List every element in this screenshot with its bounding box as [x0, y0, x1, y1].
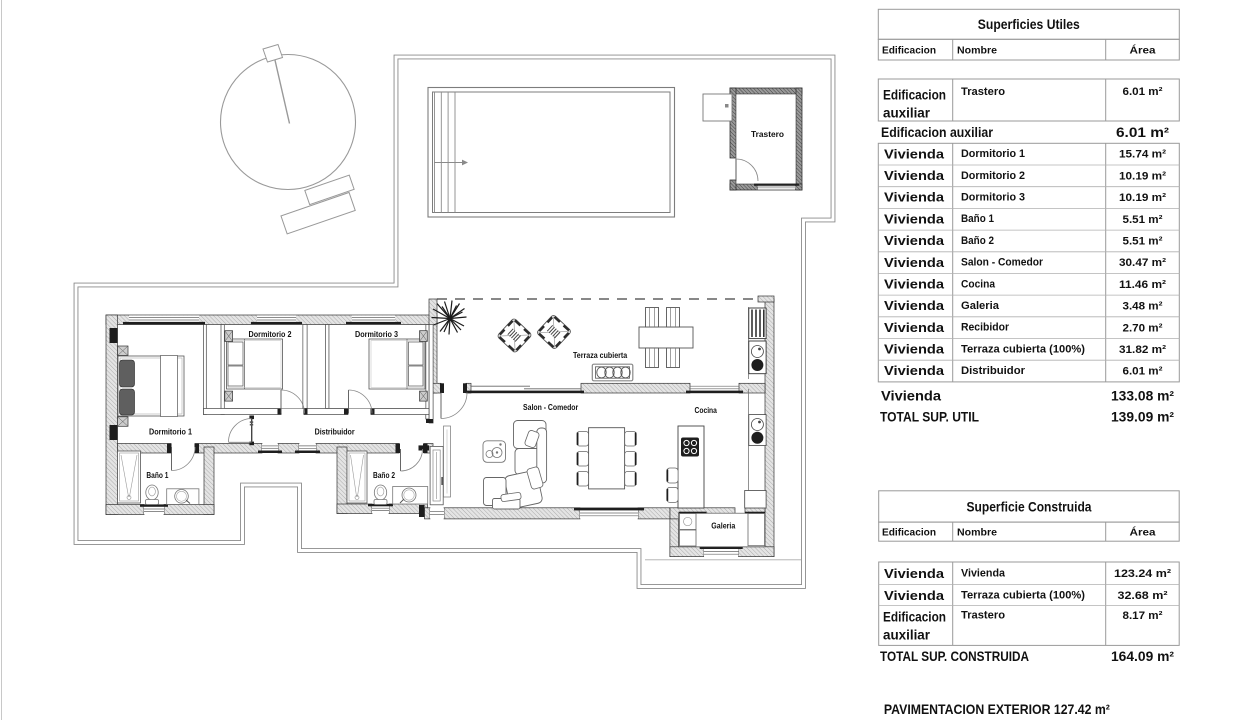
svg-text:Área: Área: [1130, 43, 1156, 56]
svg-text:Vivienda: Vivienda: [884, 211, 945, 226]
svg-text:133.08 m²: 133.08 m²: [1111, 389, 1175, 404]
svg-text:Dormitorio 1: Dormitorio 1: [149, 428, 192, 437]
svg-text:Vivienda: Vivienda: [884, 168, 945, 183]
svg-text:Vivienda: Vivienda: [884, 233, 945, 248]
svg-text:31.82 m²: 31.82 m²: [1119, 344, 1166, 356]
svg-text:Edificacion: Edificacion: [883, 88, 946, 103]
svg-text:Dormitorio 1: Dormitorio 1: [961, 148, 1025, 160]
svg-text:Vivienda: Vivienda: [884, 298, 945, 313]
svg-text:Vivienda: Vivienda: [961, 568, 1006, 580]
svg-text:Área: Área: [1130, 525, 1156, 538]
svg-text:Terraza cubierta (100%): Terraza cubierta (100%): [961, 590, 1085, 602]
svg-text:Baño 1: Baño 1: [146, 471, 168, 480]
svg-text:139.09 m²: 139.09 m²: [1111, 410, 1174, 425]
svg-text:Vivienda: Vivienda: [884, 320, 945, 335]
svg-text:2.70 m²: 2.70 m²: [1123, 322, 1163, 334]
svg-text:Vivienda: Vivienda: [884, 566, 945, 581]
svg-text:5.51 m²: 5.51 m²: [1123, 236, 1163, 248]
svg-text:Cocina: Cocina: [961, 278, 996, 290]
svg-text:Vivienda: Vivienda: [884, 255, 945, 270]
svg-text:10.19 m²: 10.19 m²: [1119, 170, 1166, 182]
svg-text:Recibidor: Recibidor: [961, 322, 1010, 334]
svg-text:Superficie Construida: Superficie Construida: [967, 498, 1092, 514]
svg-text:PAVIMENTACION EXTERIOR 127.42: PAVIMENTACION EXTERIOR 127.42 m²: [884, 701, 1110, 717]
svg-text:Trastero: Trastero: [961, 610, 1005, 622]
svg-text:Galeria: Galeria: [711, 522, 735, 531]
svg-text:Nombre: Nombre: [957, 526, 997, 538]
svg-text:Distribuidor: Distribuidor: [961, 365, 1026, 377]
svg-text:Trastero: Trastero: [961, 86, 1005, 98]
svg-text:Cocina: Cocina: [695, 406, 718, 415]
svg-text:11.46 m²: 11.46 m²: [1119, 279, 1166, 291]
svg-text:6.01 m²: 6.01 m²: [1116, 125, 1170, 140]
svg-text:Baño 2: Baño 2: [373, 471, 395, 480]
svg-text:Trastero: Trastero: [751, 130, 784, 139]
svg-text:Vivienda: Vivienda: [881, 389, 942, 404]
svg-text:auxiliar: auxiliar: [883, 628, 931, 643]
svg-text:Salon - Comedor: Salon - Comedor: [523, 403, 578, 412]
svg-text:Edificacion: Edificacion: [882, 44, 936, 56]
svg-text:3.48 m²: 3.48 m²: [1123, 301, 1163, 313]
svg-text:Dormitorio 2: Dormitorio 2: [249, 330, 292, 339]
svg-text:Dormitorio 2: Dormitorio 2: [961, 170, 1025, 182]
svg-text:6.01 m²: 6.01 m²: [1123, 86, 1163, 98]
svg-text:Vivienda: Vivienda: [884, 277, 945, 292]
svg-text:Nombre: Nombre: [957, 44, 997, 56]
svg-text:Terraza cubierta: Terraza cubierta: [573, 351, 628, 360]
svg-text:5.51 m²: 5.51 m²: [1123, 214, 1163, 226]
svg-text:Vivienda: Vivienda: [884, 146, 945, 161]
svg-text:10.19 m²: 10.19 m²: [1119, 192, 1166, 204]
svg-text:Dormitorio 3: Dormitorio 3: [355, 330, 398, 339]
svg-text:Superficies Utiles: Superficies Utiles: [978, 16, 1080, 32]
svg-text:auxiliar: auxiliar: [883, 106, 931, 121]
svg-text:15.74 m²: 15.74 m²: [1119, 149, 1166, 161]
svg-text:Vivienda: Vivienda: [884, 588, 945, 603]
svg-text:Galeria: Galeria: [961, 300, 1000, 312]
svg-text:Vivienda: Vivienda: [884, 342, 945, 357]
svg-text:32.68 m²: 32.68 m²: [1118, 590, 1168, 602]
svg-text:Edificacion auxiliar: Edificacion auxiliar: [881, 125, 994, 140]
svg-text:30.47 m²: 30.47 m²: [1119, 257, 1166, 269]
svg-text:Baño 1: Baño 1: [961, 213, 994, 225]
svg-text:TOTAL SUP. CONSTRUIDA: TOTAL SUP. CONSTRUIDA: [880, 649, 1029, 664]
svg-text:123.24 m²: 123.24 m²: [1114, 568, 1171, 580]
svg-text:Edificacion: Edificacion: [882, 526, 936, 538]
svg-text:Dormitorio 3: Dormitorio 3: [961, 192, 1025, 204]
svg-text:164.09 m²: 164.09 m²: [1111, 649, 1174, 664]
svg-text:TOTAL SUP. UTIL: TOTAL SUP. UTIL: [880, 410, 979, 425]
svg-text:6.01 m²: 6.01 m²: [1123, 366, 1163, 378]
svg-text:Salon - Comedor: Salon - Comedor: [961, 257, 1044, 269]
svg-text:Terraza cubierta (100%): Terraza cubierta (100%): [961, 343, 1085, 355]
svg-text:Vivienda: Vivienda: [884, 363, 945, 378]
svg-text:8.17 m²: 8.17 m²: [1123, 610, 1163, 622]
svg-text:Vivienda: Vivienda: [884, 190, 945, 205]
svg-text:Distribuidor: Distribuidor: [315, 428, 355, 437]
svg-text:Baño 2: Baño 2: [961, 235, 994, 247]
svg-text:Edificacion: Edificacion: [883, 610, 946, 625]
